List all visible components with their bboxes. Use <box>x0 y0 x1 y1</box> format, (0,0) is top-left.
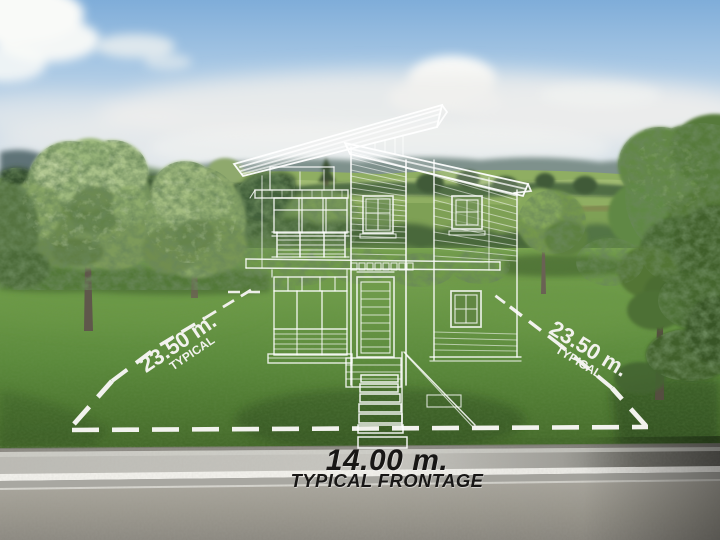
svg-text:TYPICAL FRONTAGE: TYPICAL FRONTAGE <box>291 470 484 491</box>
